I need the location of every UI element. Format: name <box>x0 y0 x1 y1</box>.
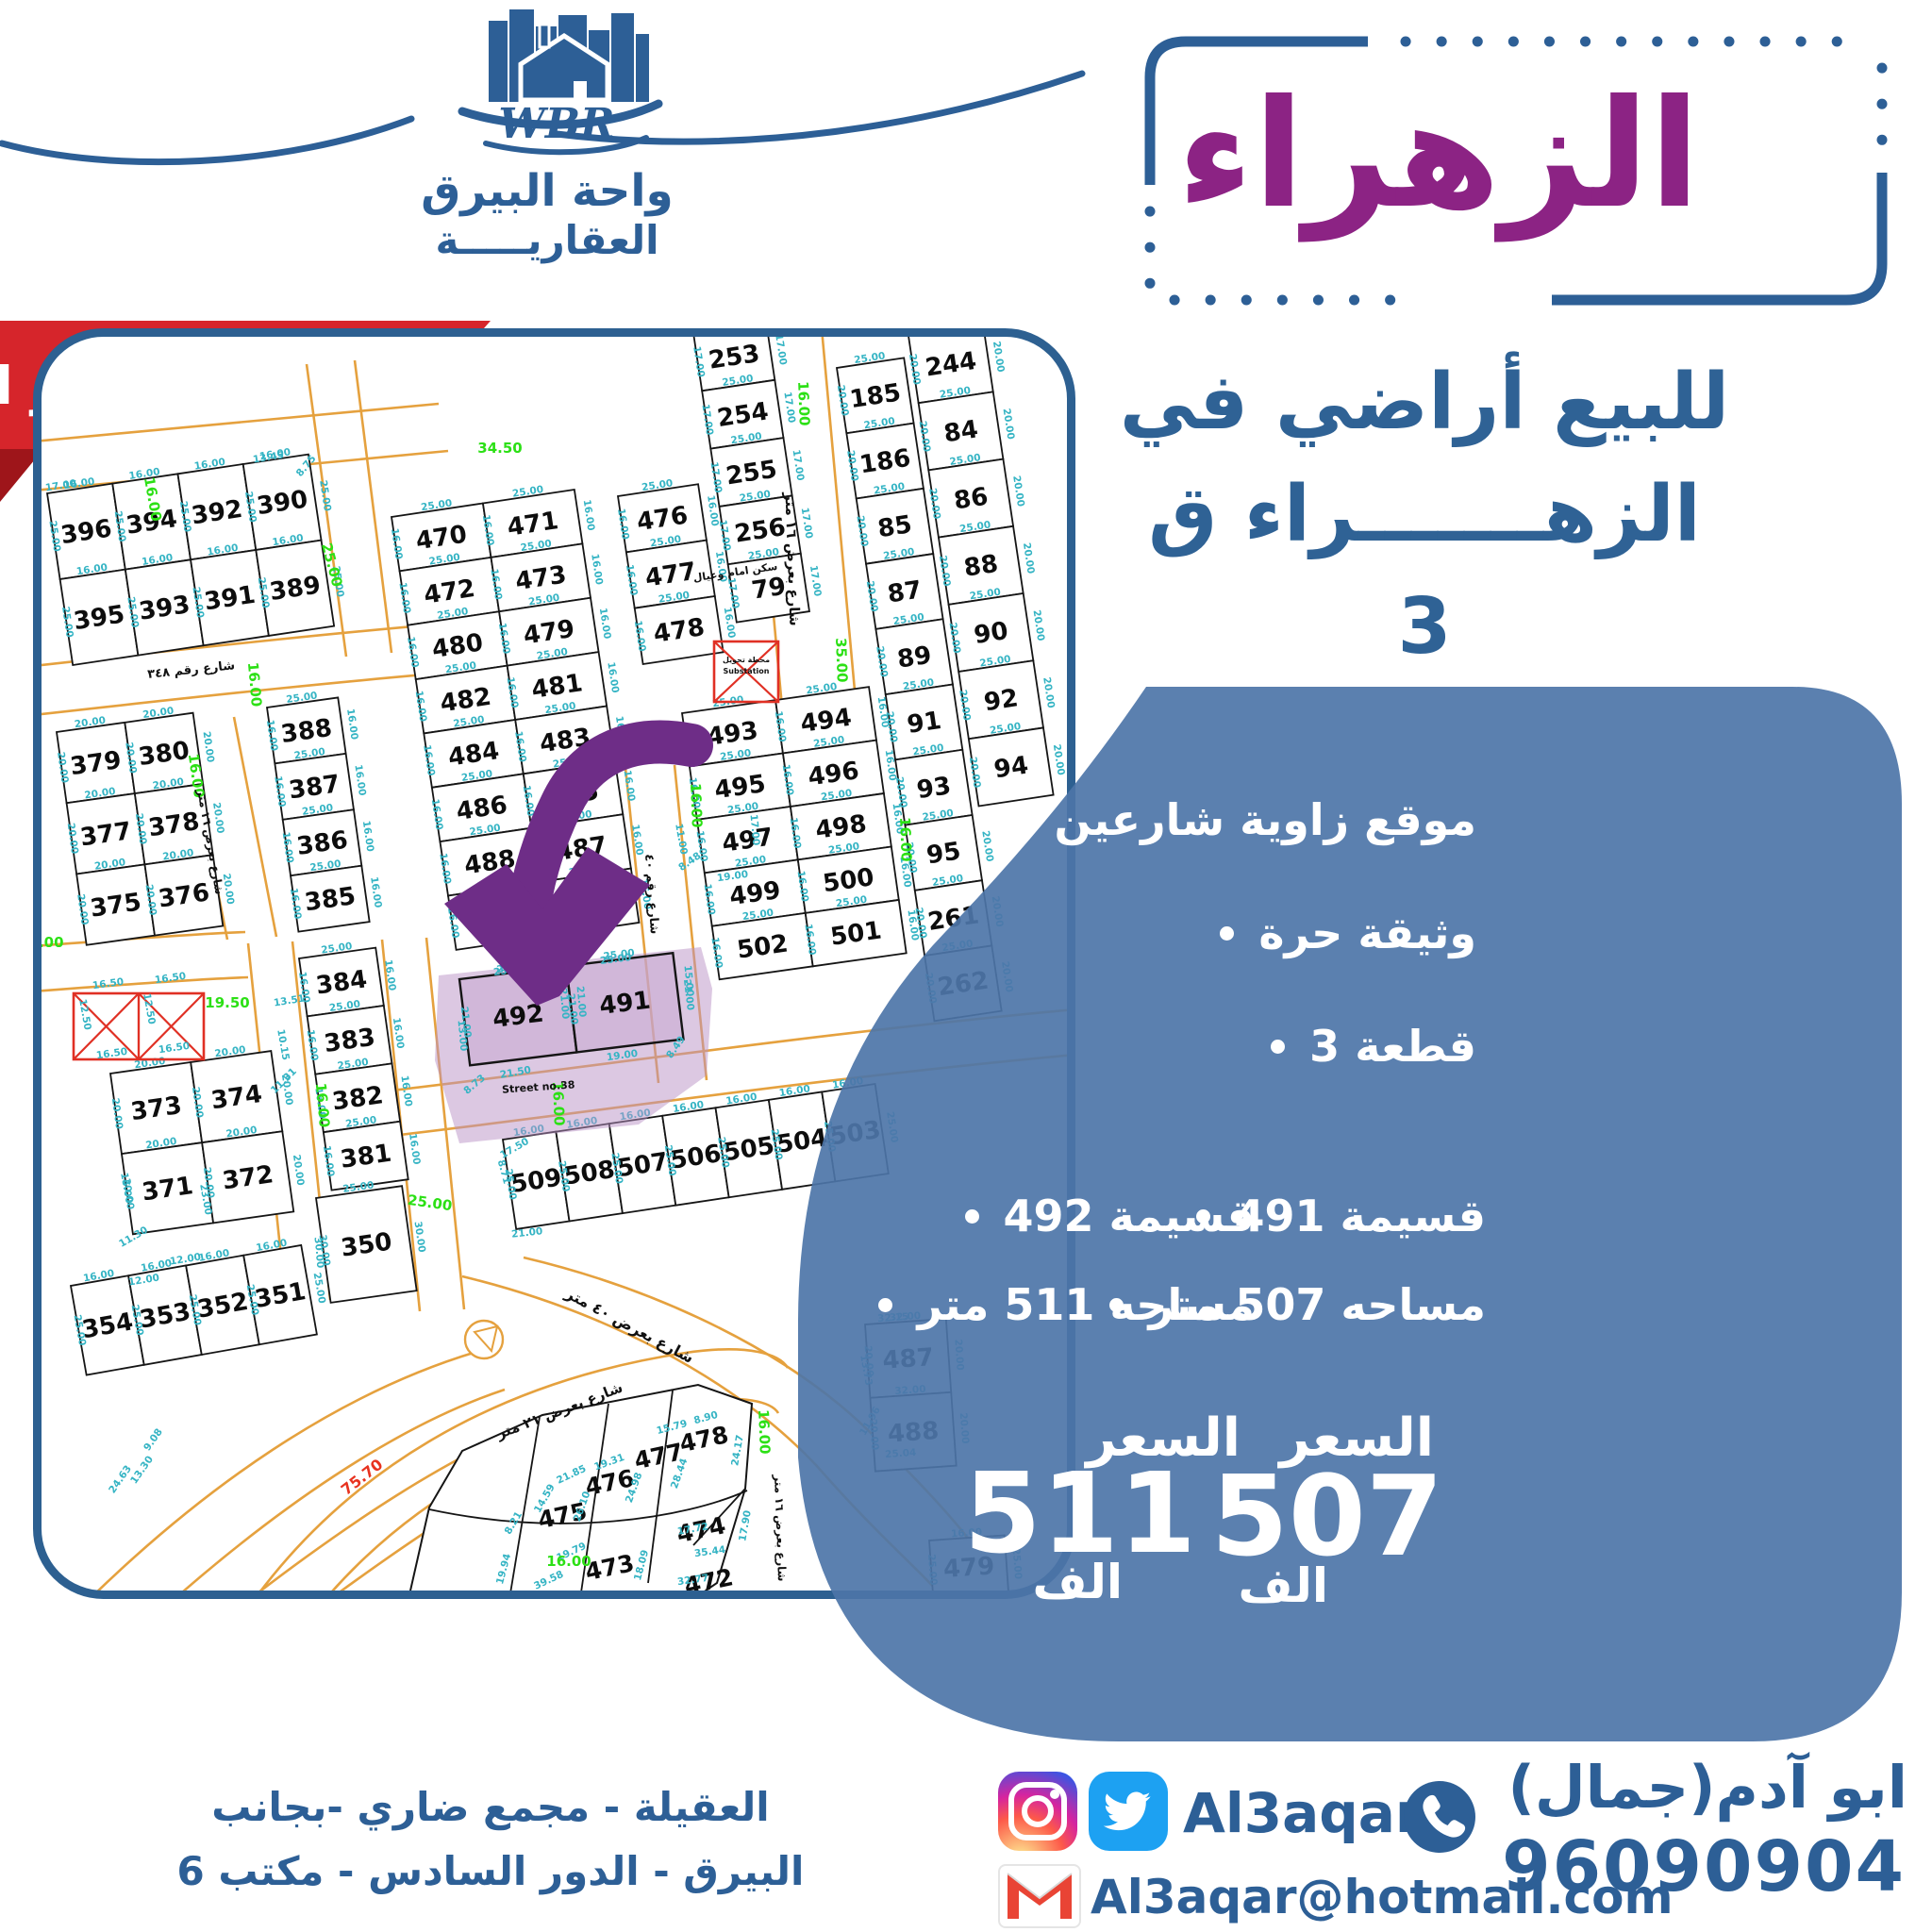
dim-label: 25.00 <box>925 1554 939 1586</box>
brand-name-line1: واحة البيرق <box>377 166 717 217</box>
gmail-icon[interactable] <box>998 1864 1081 1928</box>
flyer-canvas: WBR واحة البيرق العقاريـــــة السعر مميز… <box>0 0 1932 1932</box>
offer2-plot-text: قسيمة 492 <box>1004 1191 1256 1241</box>
street-width-label: 34.50 <box>477 440 522 457</box>
map-content: 39616.0025.0039416.0025.0039216.0025.003… <box>33 328 1075 1599</box>
parcel-number-79: 79 <box>750 573 788 606</box>
offer1-price-unit: الف <box>1239 1558 1328 1613</box>
bullet-dot <box>1220 926 1234 941</box>
dim-label: 32.00 <box>894 1384 926 1397</box>
phone-icon[interactable] <box>1404 1781 1475 1853</box>
offer2-price-unit: الف <box>1033 1555 1123 1609</box>
parcel-number-94: 94 <box>992 751 1030 784</box>
parcel-number-87: 87 <box>886 575 924 608</box>
parcel-number-92: 92 <box>982 684 1020 717</box>
offer1-plot-text: قسيمة 491 <box>1235 1191 1487 1241</box>
parcel-number-85: 85 <box>876 510 914 543</box>
brand-name-line2: العقاريـــــة <box>377 217 717 264</box>
feature-bullet-deed: وثيقة حرة <box>1220 908 1476 958</box>
parcel-number-488: 488 <box>887 1417 940 1449</box>
offer2-plot: قسيمة 492 <box>965 1191 1256 1241</box>
offer2-area: مساحه 511 متر <box>878 1279 1255 1330</box>
brand-name: واحة البيرق العقاريـــــة <box>377 166 717 264</box>
street-name-label: Substation <box>724 667 770 675</box>
parcel-number-90: 90 <box>972 617 1009 650</box>
feature-bullet-corner: موقع زاوية شارعين <box>1016 794 1477 845</box>
cadastral-map: 39616.0025.0039416.0025.0039216.0025.003… <box>33 328 1075 1599</box>
street-name-label: محطة تحويل <box>723 656 770 664</box>
street-width-label: 16.00 <box>755 1409 774 1455</box>
contact-name: ابو آدم(جمال) <box>1508 1753 1908 1822</box>
address-line1: العقيلة - مجمع ضاري -بجانب <box>104 1775 877 1840</box>
parcel-number-89: 89 <box>895 641 933 675</box>
parcel-number-95: 95 <box>924 837 962 870</box>
parcel-number-86: 86 <box>952 483 990 516</box>
bullet-dot <box>878 1298 892 1312</box>
offer2-price-value: 511 <box>964 1457 1196 1569</box>
address-line2: البيرق - الدور السادس - مكتب 6 <box>104 1840 877 1904</box>
street-width-label: 16.00 <box>546 1553 591 1570</box>
dim-label: 20.00 <box>952 1339 965 1371</box>
instagram-icon[interactable] <box>998 1772 1077 1851</box>
feature-text: قطعة 3 <box>1309 1021 1476 1072</box>
bullet-dot <box>1271 1040 1285 1054</box>
dim-label: 25.04 <box>885 1447 917 1460</box>
subtitle-line2: الزهـــــــراء ق 3 <box>1113 459 1736 684</box>
street-width-label: 16.00 <box>896 817 915 862</box>
offer2-area-text: مساحه 511 متر <box>917 1279 1255 1330</box>
office-address: العقيلة - مجمع ضاري -بجانب البيرق - الدو… <box>104 1775 877 1904</box>
phone-number[interactable]: 96090904 <box>1502 1826 1906 1907</box>
street-width-label: 16.00 <box>794 381 813 426</box>
feature-text: موقع زاوية شارعين <box>1055 794 1477 845</box>
subtitle-line1: للبيع أراضي في <box>1113 347 1736 459</box>
page-subtitle: للبيع أراضي في الزهـــــــراء ق 3 <box>1113 347 1736 684</box>
dim-label: 20.00 <box>958 1412 971 1444</box>
parcel-number-487: 487 <box>882 1343 935 1375</box>
parcel-block: 49325.0016.0049425.0016.0016.0049525.001… <box>676 675 923 980</box>
parcel-number-88: 88 <box>962 550 1000 583</box>
offer1-price-value: 507 <box>1211 1460 1443 1572</box>
wbr-logo-text: WBR <box>498 100 614 148</box>
left-wave-decoration <box>0 75 415 179</box>
street-width-label: 16.00 <box>687 783 706 828</box>
page-title: الزهراء <box>1137 74 1740 238</box>
street-width-label: 19.50 <box>205 994 249 1011</box>
parcel-number-93: 93 <box>915 772 953 805</box>
feature-text: وثيقة حرة <box>1258 908 1476 958</box>
wbr-logo: WBR <box>434 6 679 168</box>
parcel-number-84: 84 <box>942 415 980 448</box>
social-handle[interactable]: Al3aqar <box>1183 1781 1423 1845</box>
bullet-dot <box>965 1209 979 1224</box>
feature-bullet-block: قطعة 3 <box>1271 1021 1476 1072</box>
street-width-label: 35.00 <box>832 638 851 683</box>
twitter-icon[interactable] <box>1089 1772 1168 1851</box>
parcel-number-91: 91 <box>906 707 943 740</box>
bullet-dot <box>1016 813 1030 827</box>
